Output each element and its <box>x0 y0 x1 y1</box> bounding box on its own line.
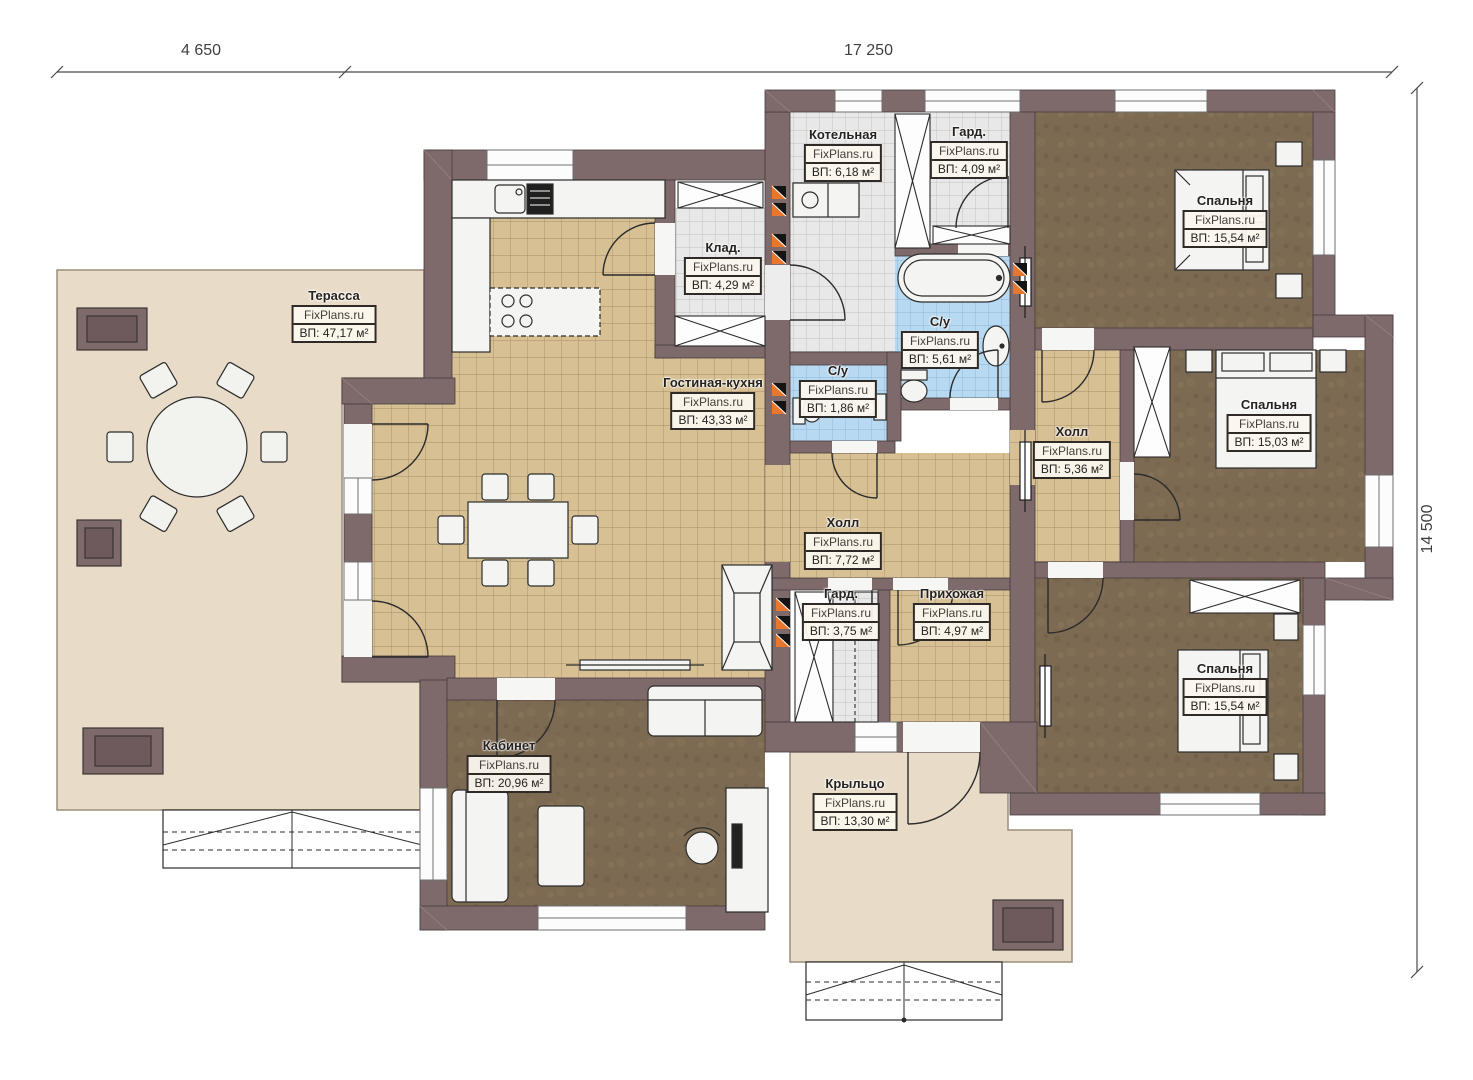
vent-icon <box>776 598 790 611</box>
fireplace-icon <box>722 565 772 670</box>
closet-icon <box>933 226 1010 244</box>
boiler-unit-icon <box>793 183 859 217</box>
closet-icon <box>895 114 930 248</box>
vent-icon <box>776 634 790 647</box>
tv-console-icon <box>566 660 704 670</box>
vent-icon <box>772 186 786 199</box>
bathroom-sink-icon <box>983 326 1009 366</box>
floor-plan-canvas: 4 650 17 250 14 500 Терасса FixPlans.ru … <box>0 0 1473 1080</box>
vent-icon <box>776 616 790 629</box>
closet-icon <box>1134 347 1170 457</box>
toilet-icon <box>901 370 927 402</box>
vent-icon <box>772 401 786 414</box>
vent-icon <box>772 251 786 264</box>
dimension-width-left: 4 650 <box>57 42 345 60</box>
floor-plan-drawing <box>0 0 1473 1080</box>
radiator-icon <box>1020 430 1031 512</box>
terrace-steps-icon <box>163 810 422 868</box>
porch-mat-icon <box>993 900 1063 950</box>
dimension-height: 14 500 <box>1419 429 1437 629</box>
porch-steps-icon <box>806 962 1002 1023</box>
closet-icon <box>795 592 833 722</box>
bathtub-icon <box>898 254 1010 302</box>
closet-icon <box>678 182 763 208</box>
vent-icon <box>1013 281 1027 294</box>
kitchen-island-icon <box>490 288 600 336</box>
vent-icon <box>772 234 786 247</box>
office-sofa-icon <box>648 686 762 736</box>
closet-icon <box>675 316 765 346</box>
vent-icon <box>772 203 786 216</box>
radiator-icon <box>1040 654 1051 738</box>
vent-icon <box>1013 263 1027 276</box>
office-couch-icon <box>452 790 508 902</box>
dimension-width-main: 17 250 <box>345 42 1392 60</box>
office-coffee-table-icon <box>538 806 584 886</box>
vent-icon <box>772 383 786 396</box>
small-sink-icon <box>793 398 821 424</box>
closet-icon <box>1190 580 1300 613</box>
